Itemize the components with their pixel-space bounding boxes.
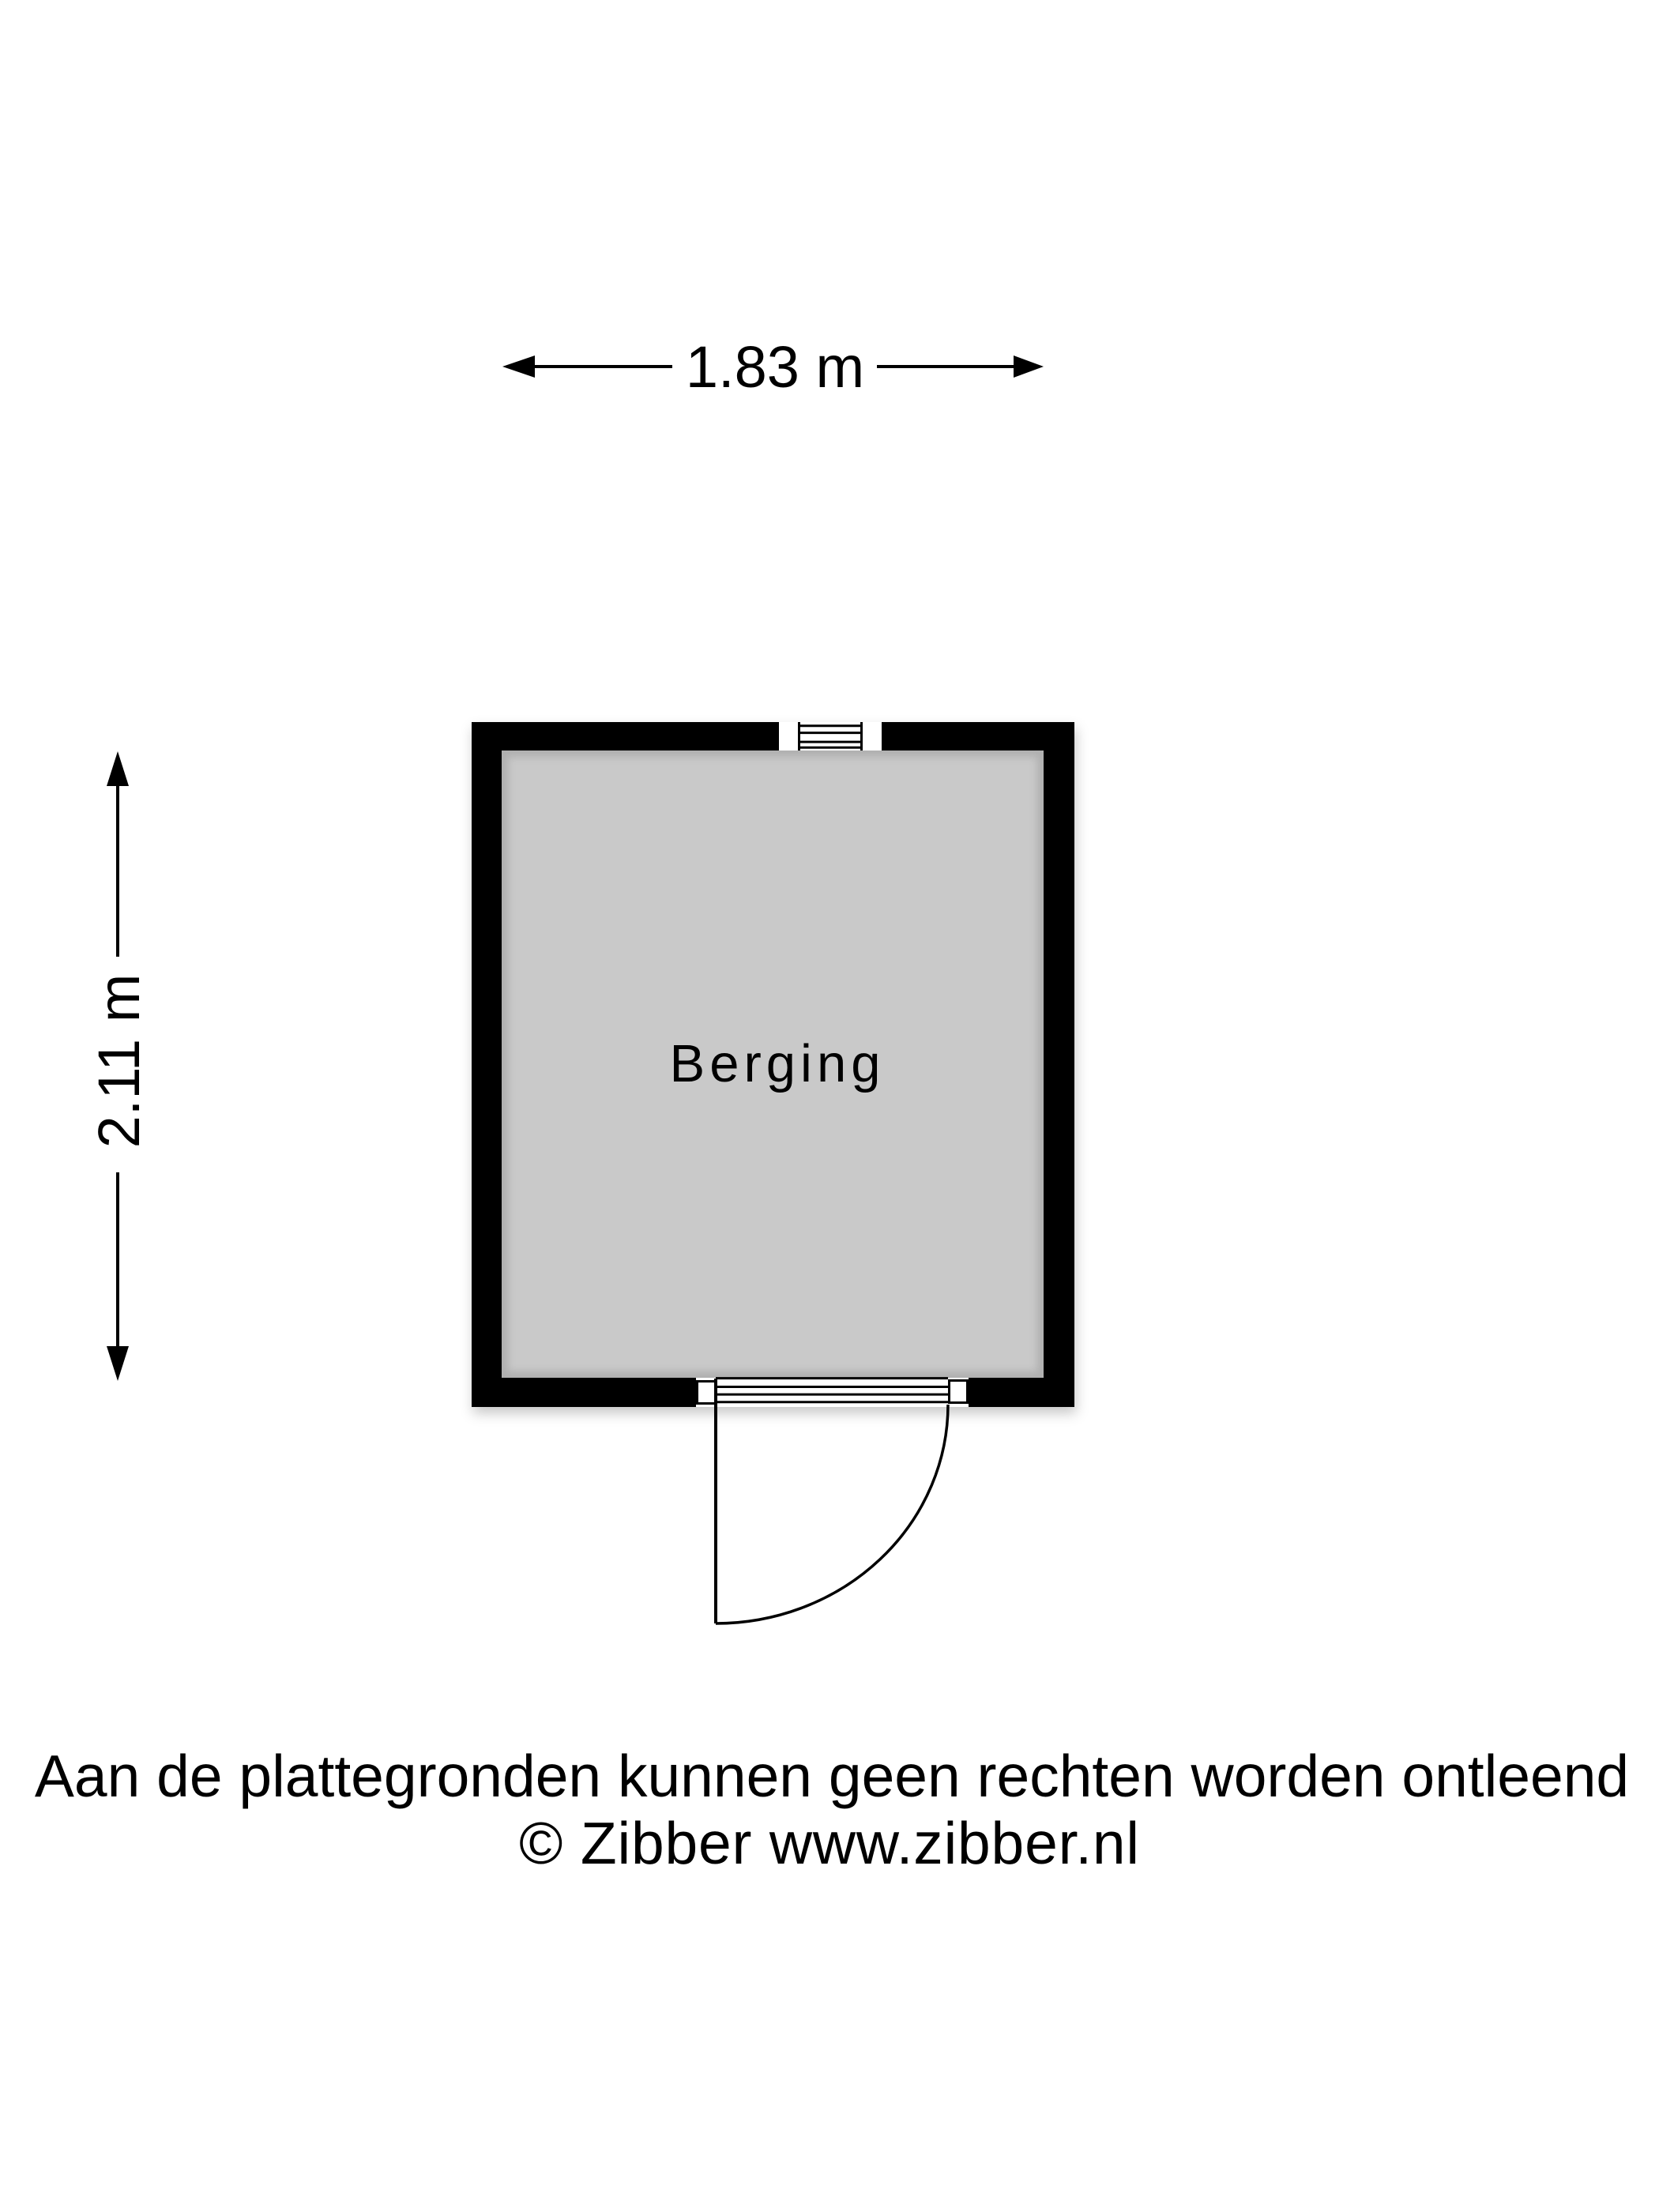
svg-text:© Zibber www.zibber.nl: © Zibber www.zibber.nl <box>519 1810 1140 1876</box>
svg-text:Aan de plattegronden kunnen ge: Aan de plattegronden kunnen geen rechten… <box>35 1743 1629 1809</box>
svg-text:1.83 m: 1.83 m <box>686 334 864 400</box>
svg-text:2.11 m: 2.11 m <box>86 974 152 1149</box>
svg-text:Berging: Berging <box>670 1034 886 1093</box>
